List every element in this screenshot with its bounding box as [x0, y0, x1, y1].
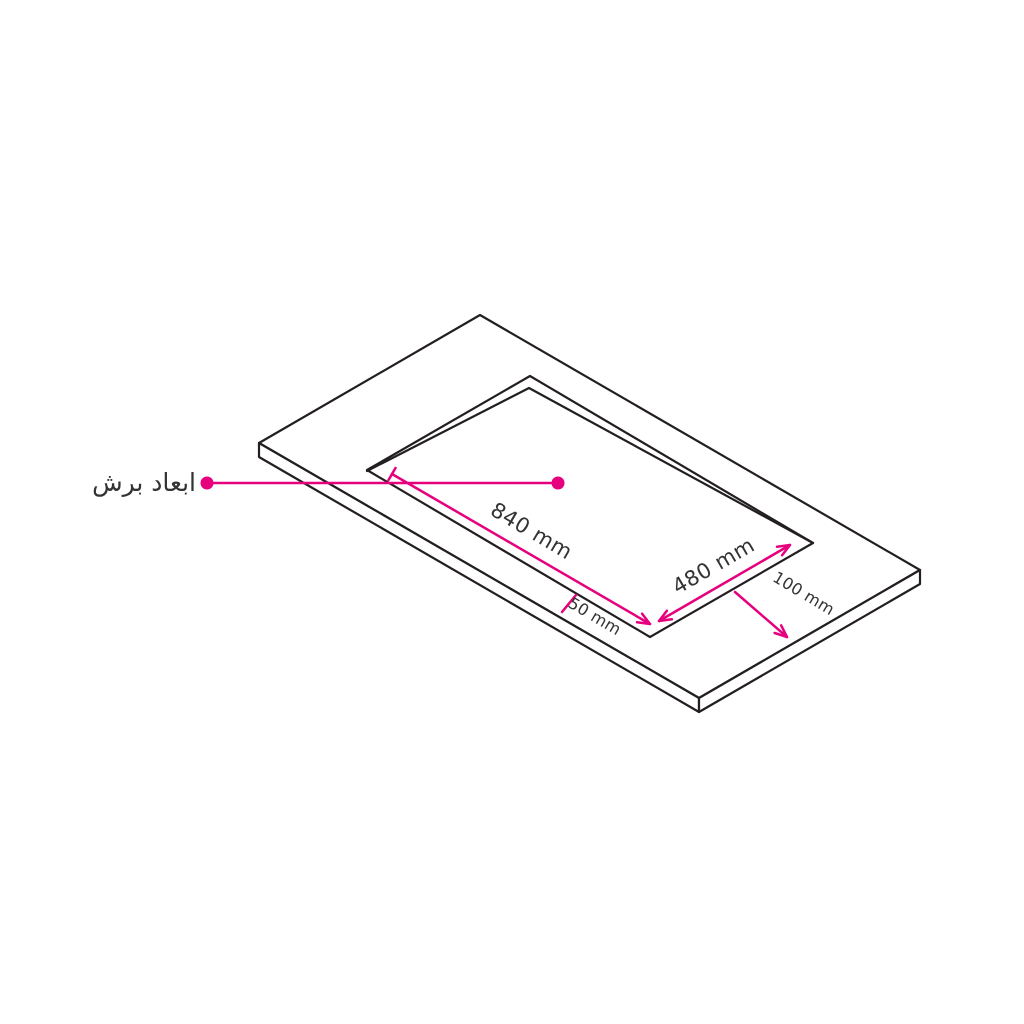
callout-label: ابعاد برش — [92, 468, 196, 497]
callout-dot-left — [201, 477, 214, 490]
cutout-dimensions-diagram: ابعاد برش 840 mm 480 mm 50 mm 100 mm — [0, 0, 1024, 1024]
callout-dot-right — [552, 477, 565, 490]
isometric-diagram-canvas: ابعاد برش 840 mm 480 mm 50 mm 100 mm — [0, 0, 1024, 1024]
